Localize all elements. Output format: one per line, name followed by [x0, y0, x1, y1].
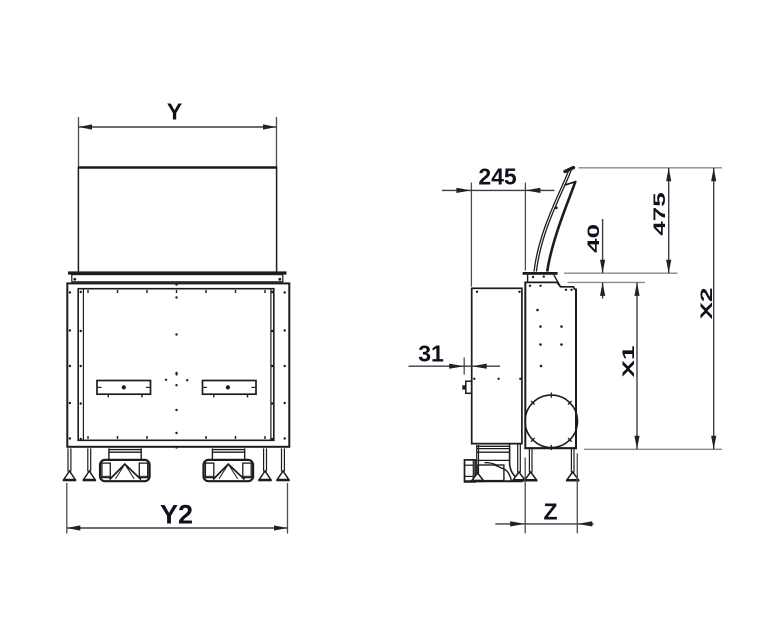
svg-text:X1: X1	[619, 346, 638, 378]
svg-text:Z: Z	[543, 499, 557, 525]
svg-text:245: 245	[478, 164, 517, 190]
svg-text:475: 475	[650, 192, 669, 235]
svg-text:X2: X2	[697, 288, 716, 320]
svg-text:31: 31	[418, 341, 444, 367]
svg-text:40: 40	[583, 224, 602, 253]
svg-text:Y2: Y2	[160, 500, 193, 530]
svg-text:Y: Y	[167, 99, 182, 125]
